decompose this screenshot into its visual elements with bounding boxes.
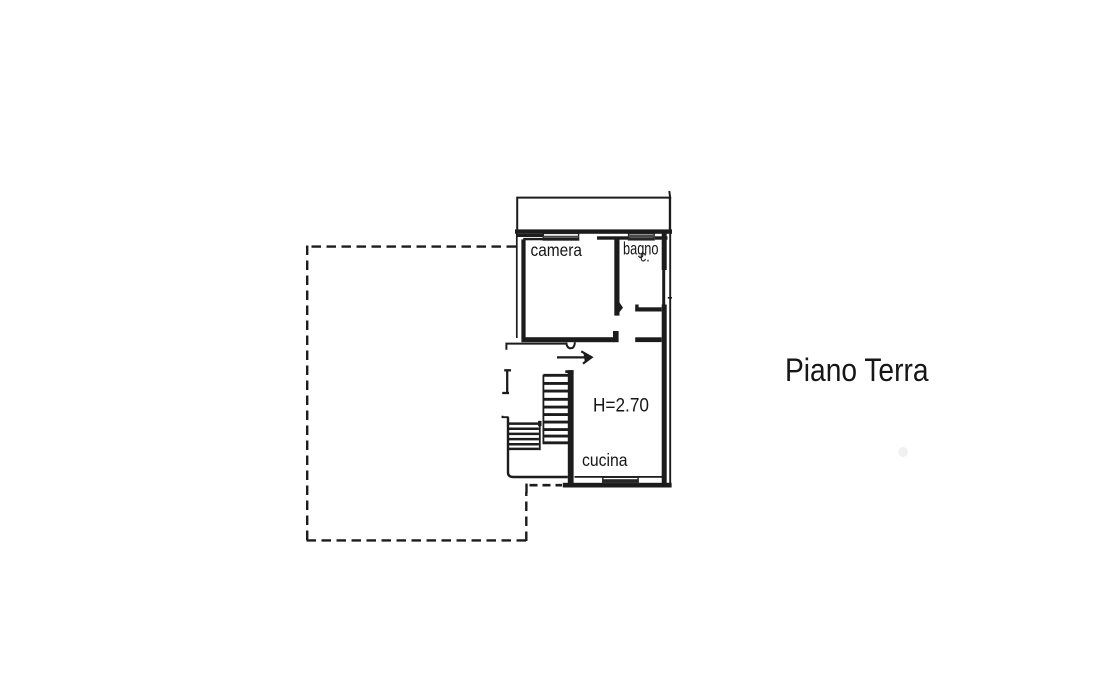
svg-text:c.: c. xyxy=(640,248,650,266)
svg-text:camera: camera xyxy=(531,240,583,260)
svg-text:H=2.70: H=2.70 xyxy=(593,394,649,415)
svg-text:cucina: cucina xyxy=(582,451,628,470)
svg-text:Piano Terra: Piano Terra xyxy=(785,353,929,388)
